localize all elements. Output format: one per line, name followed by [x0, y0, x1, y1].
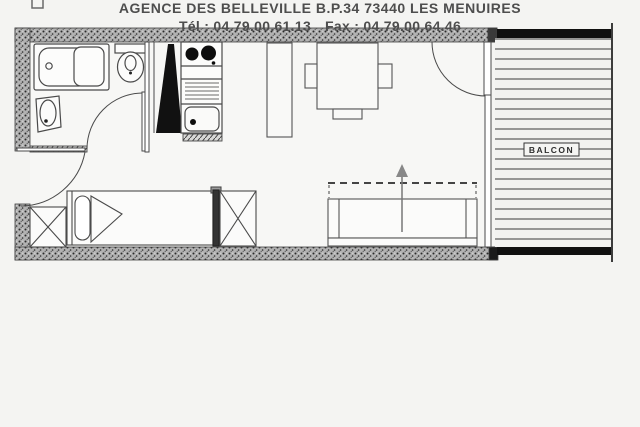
wardrobe-right	[220, 191, 256, 246]
wall-bottom-end	[489, 247, 498, 260]
agency-name: AGENCE DES BELLEVILLE B.P.34 73440 LES M…	[0, 0, 640, 16]
agency-fax: Fax : 04.79.00.64.46	[325, 18, 461, 34]
divider-wall	[213, 190, 219, 246]
pillow	[75, 196, 90, 240]
chair-right	[378, 64, 392, 88]
balcony: BALCON	[495, 23, 612, 262]
washbasin	[36, 96, 61, 132]
kitchen-base	[183, 134, 222, 141]
chair-left	[305, 64, 317, 88]
floorplan-drawing: BALCON	[0, 0, 640, 427]
agency-contact: Tél : 04.79.00.61.13Fax : 04.79.00.64.46	[0, 18, 640, 34]
kitchen-unit	[181, 42, 222, 141]
agency-footer: AGENCE DES BELLEVILLE B.P.34 73440 LES M…	[0, 0, 640, 34]
dining-table	[317, 43, 378, 109]
drainboard	[185, 82, 219, 102]
wardrobe-left	[30, 207, 66, 247]
balcony-partition	[485, 95, 491, 247]
wall-bottom	[15, 247, 497, 260]
balcony-label: BALCON	[529, 145, 574, 155]
agency-tel: Tél : 04.79.00.61.13	[179, 18, 311, 34]
chair-bottom	[333, 109, 362, 119]
balcony-bottom-rail	[497, 247, 611, 255]
bed	[67, 191, 213, 245]
wall-left-upper	[15, 28, 30, 151]
shelf-unit	[267, 43, 292, 137]
kitchen-sink	[185, 107, 219, 131]
toilet	[115, 44, 146, 82]
floorplan-image: BALCON AGENCE DES BELLEVILLE B.P.34 7344…	[0, 0, 640, 427]
bathtub	[34, 44, 109, 90]
